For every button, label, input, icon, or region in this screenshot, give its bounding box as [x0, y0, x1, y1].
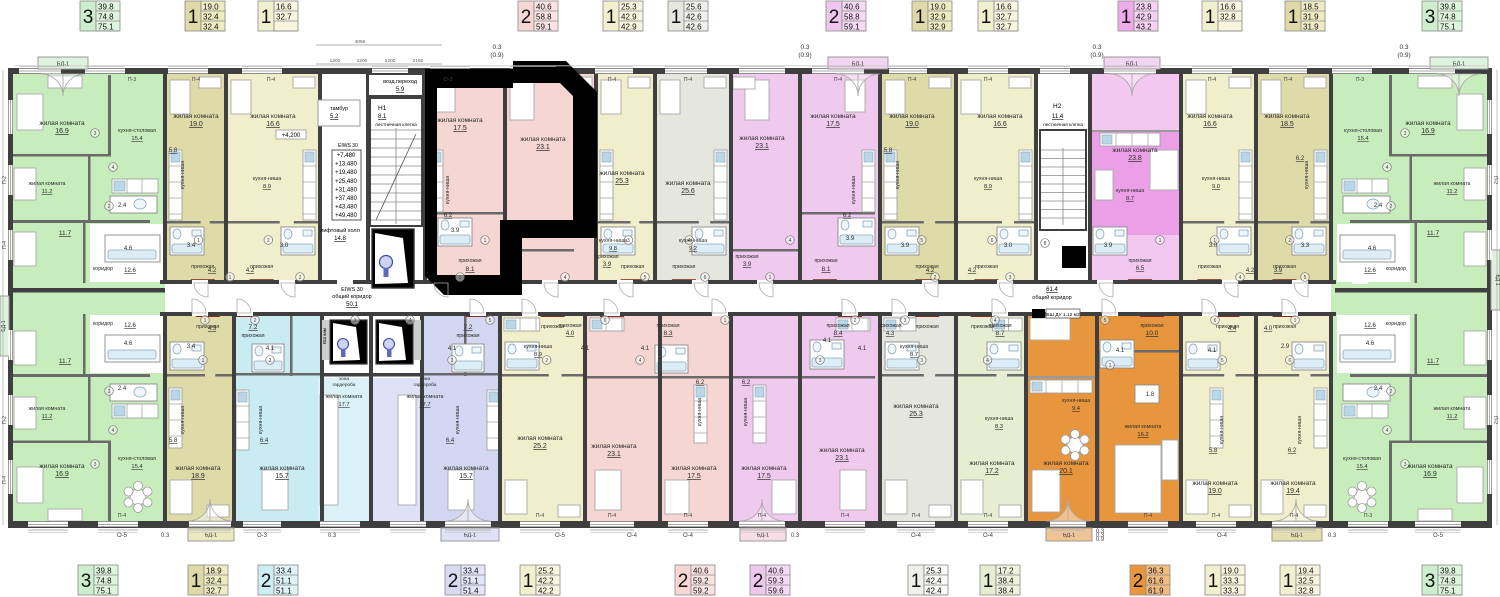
svg-text:жилая комната: жилая комната: [173, 113, 219, 120]
svg-text:19.0: 19.0: [189, 121, 203, 128]
svg-text:2.4: 2.4: [118, 386, 127, 392]
svg-text:15.7: 15.7: [275, 473, 289, 480]
svg-text:прихожая: прихожая: [621, 264, 644, 270]
svg-text:6.2: 6.2: [1288, 448, 1297, 454]
svg-text:коридор: коридор: [93, 321, 113, 327]
svg-text:кухня-ниша: кухня-ниша: [1304, 161, 1310, 189]
svg-text:5: 5: [489, 318, 492, 324]
svg-text:0.3: 0.3: [492, 44, 501, 51]
svg-text:2: 2: [854, 318, 857, 324]
svg-text:О-4: О-4: [911, 533, 922, 539]
svg-text:П-4: П-4: [1144, 513, 1153, 519]
svg-text:П-4: П-4: [908, 77, 917, 83]
svg-text:прихожая: прихожая: [558, 323, 581, 329]
svg-text:1: 1: [261, 7, 272, 28]
svg-text:кухня-ниша: кухня-ниша: [524, 344, 552, 350]
svg-text:61.4: 61.4: [1046, 287, 1058, 293]
svg-text:2: 2: [934, 275, 937, 281]
svg-text:32.7: 32.7: [996, 23, 1012, 32]
svg-text:кухня-ниша: кухня-ниша: [985, 416, 1013, 422]
svg-text:жилая комната: жилая комната: [39, 120, 85, 127]
svg-text:5.9: 5.9: [396, 87, 405, 93]
svg-text:тамбур: тамбур: [330, 106, 348, 112]
svg-text:+49,480: +49,480: [335, 213, 358, 219]
svg-text:6: 6: [704, 275, 707, 281]
svg-text:жилая комната: жилая комната: [977, 113, 1023, 120]
svg-text:38.4: 38.4: [998, 587, 1014, 596]
svg-text:4: 4: [409, 318, 412, 324]
svg-text:15.4: 15.4: [1356, 464, 1368, 470]
svg-text:25.6: 25.6: [686, 3, 702, 12]
svg-text:2: 2: [753, 571, 764, 592]
svg-text:О-4: О-4: [683, 533, 694, 539]
svg-text:3.9: 3.9: [1104, 243, 1113, 249]
svg-text:4.1: 4.1: [858, 346, 867, 352]
svg-text:2: 2: [1133, 571, 1144, 592]
svg-text:прихожая: прихожая: [916, 324, 939, 330]
svg-text:прихожая: прихожая: [1140, 323, 1163, 329]
svg-text:39.8: 39.8: [98, 3, 114, 12]
svg-text:17.5: 17.5: [453, 125, 467, 132]
svg-text:прихожая: прихожая: [456, 333, 479, 339]
svg-text:10.0: 10.0: [1146, 330, 1159, 337]
svg-text:О-3: О-3: [444, 77, 453, 83]
svg-text:3: 3: [1425, 7, 1436, 28]
svg-text:4.1: 4.1: [448, 346, 457, 352]
svg-text:16.6: 16.6: [1203, 121, 1217, 128]
svg-text:1: 1: [1159, 238, 1162, 244]
svg-text:жилая комната: жилая комната: [517, 435, 563, 442]
svg-text:23.1: 23.1: [835, 455, 849, 462]
svg-text:15.4: 15.4: [1357, 136, 1369, 142]
svg-text:42.9: 42.9: [1136, 13, 1152, 22]
svg-text:12.6: 12.6: [124, 323, 136, 329]
svg-text:8.3: 8.3: [663, 330, 672, 337]
svg-text:4: 4: [994, 318, 997, 324]
svg-text:1: 1: [671, 7, 682, 28]
svg-text:жилая комната: жилая комната: [1405, 120, 1451, 127]
svg-text:16.6: 16.6: [993, 121, 1007, 128]
svg-text:5.8: 5.8: [169, 148, 178, 154]
svg-text:О-5: О-5: [1433, 533, 1444, 539]
svg-text:7.2: 7.2: [248, 324, 257, 331]
svg-text:жилая комната: жилая комната: [810, 113, 856, 120]
svg-text:прихожая: прихожая: [1128, 258, 1151, 264]
svg-text:3: 3: [1404, 131, 1407, 137]
svg-text:П-3: П-3: [128, 77, 137, 83]
svg-text:6.2: 6.2: [444, 213, 453, 219]
svg-text:17.7: 17.7: [338, 402, 349, 408]
svg-text:1.8: 1.8: [1146, 392, 1155, 398]
svg-text:4.3: 4.3: [208, 326, 217, 332]
svg-text:4.1: 4.1: [641, 346, 650, 352]
svg-text:гардероба: гардероба: [414, 382, 437, 388]
svg-text:4.4: 4.4: [1228, 326, 1237, 332]
svg-text:кухня-ниша: кухня-ниша: [851, 176, 857, 204]
svg-text:51.4: 51.4: [463, 587, 479, 596]
svg-text:2: 2: [678, 571, 689, 592]
svg-text:32.8: 32.8: [1298, 587, 1314, 596]
svg-text:БД-1: БД-1: [205, 533, 217, 539]
svg-text:31.9: 31.9: [1303, 23, 1319, 32]
svg-text:БД-1: БД-1: [757, 533, 769, 539]
svg-text:25.3: 25.3: [615, 178, 629, 185]
svg-text:3.0: 3.0: [280, 243, 289, 249]
svg-text:4: 4: [564, 275, 567, 281]
svg-text:9.4: 9.4: [1072, 406, 1081, 412]
svg-text:39.8: 39.8: [1440, 567, 1456, 576]
svg-text:0.3: 0.3: [328, 533, 337, 539]
svg-text:гардероба: гардероба: [333, 382, 356, 388]
svg-text:H2: H2: [1053, 103, 1062, 110]
svg-text:40.6: 40.6: [844, 3, 860, 12]
svg-text:33.3: 33.3: [1223, 587, 1239, 596]
svg-text:5: 5: [1221, 358, 1224, 364]
svg-text:32.4: 32.4: [203, 23, 219, 32]
svg-text:О-4: О-4: [983, 533, 994, 539]
svg-text:4: 4: [986, 358, 989, 364]
svg-text:75.1: 75.1: [96, 587, 112, 596]
svg-text:14.8: 14.8: [334, 236, 346, 242]
svg-text:прихожая: прихожая: [1273, 324, 1296, 330]
svg-text:кухня-ниша: кухня-ниша: [1219, 416, 1225, 444]
svg-text:кухня-ниша: кухня-ниша: [743, 398, 749, 426]
svg-text:9.2: 9.2: [689, 246, 697, 252]
svg-text:+7,480: +7,480: [337, 153, 356, 159]
svg-text:кухня-ниша: кухня-ниша: [895, 161, 901, 189]
svg-text:5.8: 5.8: [169, 438, 178, 444]
svg-text:43.2: 43.2: [1136, 23, 1152, 32]
svg-text:жилая комната: жилая комната: [1125, 424, 1162, 430]
svg-text:П-4: П-4: [536, 513, 545, 519]
svg-text:2.9: 2.9: [1281, 344, 1290, 350]
svg-text:1: 1: [1288, 7, 1299, 28]
svg-text:лестничная клетка: лестничная клетка: [375, 123, 417, 128]
svg-text:1: 1: [202, 358, 205, 364]
svg-text:17.5: 17.5: [826, 121, 840, 128]
svg-text:жилая комната: жилая комната: [739, 135, 785, 142]
svg-text:ВШ ДУ 1.12 м2: ВШ ДУ 1.12 м2: [1046, 312, 1080, 318]
svg-text:18.5: 18.5: [1280, 121, 1294, 128]
svg-text:П-3: П-3: [1356, 77, 1365, 83]
svg-text:6: 6: [1214, 318, 1217, 324]
svg-text:50.1: 50.1: [346, 302, 358, 308]
svg-text:17.5: 17.5: [757, 473, 771, 480]
svg-text:3: 3: [1404, 462, 1407, 468]
svg-text:1200: 1200: [385, 58, 396, 64]
svg-text:прихожая: прихожая: [735, 254, 758, 260]
svg-text:23.1: 23.1: [536, 144, 550, 151]
svg-text:32.4: 32.4: [203, 13, 219, 22]
svg-text:жилая комната: жилая комната: [29, 181, 66, 187]
svg-text:36.3: 36.3: [1148, 567, 1164, 576]
svg-text:П-4: П-4: [1290, 513, 1299, 519]
svg-text:3: 3: [94, 462, 97, 468]
svg-text:11.7: 11.7: [59, 230, 72, 237]
svg-text:5: 5: [920, 238, 923, 244]
svg-text:жилая комната: жилая комната: [1434, 181, 1471, 187]
svg-text:11.2: 11.2: [42, 414, 53, 420]
svg-text:БД-1: БД-1: [1291, 533, 1303, 539]
svg-text:4.0: 4.0: [1264, 326, 1273, 332]
svg-text:3.4: 3.4: [187, 344, 196, 350]
svg-text:42.9: 42.9: [621, 13, 637, 22]
svg-text:О-5: О-5: [555, 533, 566, 539]
svg-text:3: 3: [451, 358, 454, 364]
svg-text:зона: зона: [420, 377, 430, 382]
svg-text:О-3: О-3: [257, 533, 268, 539]
svg-text:3.9: 3.9: [603, 262, 612, 268]
svg-text:лифтовый холл: лифтовый холл: [320, 227, 360, 234]
svg-text:жилая комната: жилая комната: [520, 136, 566, 143]
svg-text:32.9: 32.9: [930, 13, 946, 22]
svg-text:23.1: 23.1: [755, 143, 769, 150]
svg-text:(0.9): (0.9): [798, 52, 811, 59]
svg-text:H1: H1: [378, 105, 387, 112]
svg-text:П-4: П-4: [684, 77, 693, 83]
svg-text:прихожая: прихожая: [595, 254, 618, 260]
svg-text:61.9: 61.9: [1148, 587, 1164, 596]
svg-text:0.9: 0.9: [1096, 537, 1105, 543]
svg-text:25.6: 25.6: [681, 188, 695, 195]
svg-text:4: 4: [1386, 428, 1389, 434]
svg-text:33.4: 33.4: [276, 567, 292, 576]
svg-text:12.6: 12.6: [1364, 268, 1376, 274]
svg-text:3: 3: [459, 275, 462, 281]
svg-text:О-4: О-4: [627, 533, 638, 539]
svg-text:4.6: 4.6: [124, 341, 133, 347]
svg-text:жилая комната: жилая комната: [1434, 406, 1471, 412]
svg-text:15.4: 15.4: [131, 136, 143, 142]
svg-text:6.4: 6.4: [446, 438, 455, 444]
svg-text:0.3: 0.3: [1096, 529, 1105, 535]
svg-text:32.8: 32.8: [1220, 13, 1236, 22]
svg-text:4: 4: [639, 358, 642, 364]
svg-text:3.9: 3.9: [451, 228, 460, 234]
svg-text:+31,480: +31,480: [335, 187, 358, 193]
svg-text:кухня-ниша: кухня-ниша: [974, 176, 1002, 182]
svg-text:(0.9): (0.9): [1090, 52, 1103, 59]
svg-text:1: 1: [1208, 571, 1219, 592]
svg-text:прихожая: прихожая: [241, 333, 264, 339]
svg-text:0.3: 0.3: [800, 44, 809, 51]
svg-text:3: 3: [1425, 571, 1436, 592]
svg-text:3.9: 3.9: [846, 236, 855, 242]
svg-text:кухня-столовая: кухня-столовая: [118, 128, 156, 134]
svg-text:19.0: 19.0: [905, 121, 919, 128]
svg-text:5: 5: [644, 275, 647, 281]
svg-text:1: 1: [204, 318, 207, 324]
svg-text:16.9: 16.9: [1423, 471, 1437, 478]
svg-text:16.9: 16.9: [1421, 128, 1435, 135]
svg-text:4.1: 4.1: [1116, 348, 1125, 354]
svg-text:П-3: П-3: [1364, 513, 1373, 519]
svg-text:общий коридор: общий коридор: [332, 293, 371, 300]
svg-text:25.2: 25.2: [538, 567, 554, 576]
svg-text:11.2: 11.2: [1447, 414, 1458, 420]
svg-text:16.6: 16.6: [996, 3, 1012, 12]
svg-text:1: 1: [1109, 363, 1112, 369]
svg-text:6: 6: [604, 318, 607, 324]
svg-text:2.4: 2.4: [118, 203, 127, 209]
svg-text:11.7: 11.7: [59, 358, 72, 365]
svg-text:11.7: 11.7: [1427, 358, 1440, 365]
svg-text:32.7: 32.7: [996, 13, 1012, 22]
svg-text:4: 4: [112, 428, 115, 434]
svg-text:П-4: П-4: [118, 513, 127, 519]
svg-text:прихожая: прихожая: [975, 264, 998, 270]
svg-text:18.9: 18.9: [191, 473, 205, 480]
svg-text:жилая комната: жилая комната: [1264, 113, 1310, 120]
svg-text:прихожая: прихожая: [814, 258, 837, 264]
svg-text:6.2: 6.2: [843, 213, 852, 219]
svg-text:жилая комната: жилая комната: [889, 113, 935, 120]
svg-text:16.6: 16.6: [1220, 3, 1236, 12]
svg-text:1: 1: [769, 275, 772, 281]
svg-text:2: 2: [269, 358, 272, 364]
svg-text:прихожая: прихожая: [988, 323, 1011, 329]
svg-text:2: 2: [1390, 204, 1393, 210]
svg-text:25.3: 25.3: [909, 411, 923, 418]
svg-text:1: 1: [1294, 318, 1297, 324]
svg-text:18.5: 18.5: [1303, 3, 1319, 12]
svg-text:1: 1: [915, 7, 926, 28]
svg-text:жилая комната: жилая комната: [326, 394, 363, 400]
svg-text:40.6: 40.6: [536, 3, 552, 12]
svg-text:8: 8: [1044, 241, 1047, 247]
svg-text:жилая комната: жилая комната: [1192, 480, 1238, 487]
svg-text:8.1: 8.1: [378, 114, 387, 120]
svg-text:4.6: 4.6: [1366, 341, 1375, 347]
svg-text:П-4: П-4: [834, 77, 843, 83]
svg-text:16.9: 16.9: [55, 471, 69, 478]
svg-text:23.1: 23.1: [607, 451, 621, 458]
svg-text:11.2: 11.2: [42, 189, 53, 195]
svg-text:5.2: 5.2: [330, 114, 339, 120]
svg-text:1200: 1200: [330, 58, 341, 64]
svg-text:жилая комната: жилая комната: [665, 180, 711, 187]
svg-text:1: 1: [606, 7, 617, 28]
svg-text:П-2: П-2: [2, 176, 8, 184]
svg-text:кухня-столовая: кухня-столовая: [1343, 456, 1381, 462]
svg-text:прихожая: прихожая: [672, 264, 695, 270]
svg-text:2: 2: [1390, 389, 1393, 395]
svg-text:8.7: 8.7: [995, 330, 1004, 337]
svg-text:6: 6: [1288, 358, 1291, 364]
svg-text:38.4: 38.4: [998, 577, 1014, 586]
svg-text:возд.переход: возд.переход: [383, 79, 418, 85]
svg-text:42.4: 42.4: [926, 587, 942, 596]
svg-text:1: 1: [983, 571, 994, 592]
svg-text:33.3: 33.3: [1223, 577, 1239, 586]
svg-text:42.2: 42.2: [538, 587, 554, 596]
svg-text:БД-1: БД-1: [464, 533, 476, 539]
svg-text:3: 3: [1009, 275, 1012, 281]
svg-text:жилая комната: жилая комната: [407, 394, 444, 400]
svg-text:EIWS 30: EIWS 30: [341, 287, 363, 293]
svg-text:4.2: 4.2: [208, 268, 217, 274]
svg-text:8.1: 8.1: [821, 266, 830, 273]
svg-text:3: 3: [904, 318, 907, 324]
svg-text:кухня-ниша: кухня-ниша: [455, 406, 461, 434]
svg-text:8.9: 8.9: [534, 352, 542, 358]
svg-text:+19,480: +19,480: [335, 170, 358, 176]
svg-text:П-4: П-4: [2, 241, 8, 249]
svg-text:4: 4: [789, 238, 792, 244]
svg-text:лестничная клетка: лестничная клетка: [1043, 122, 1083, 127]
svg-text:17.2: 17.2: [998, 567, 1014, 576]
svg-text:2: 2: [829, 7, 840, 28]
svg-text:8.7: 8.7: [910, 352, 918, 358]
svg-text:2150: 2150: [413, 58, 424, 64]
svg-text:5.8: 5.8: [1209, 448, 1218, 454]
svg-text:(0.9): (0.9): [1397, 52, 1410, 59]
svg-text:П-4: П-4: [1284, 77, 1293, 83]
svg-text:74.8: 74.8: [1440, 13, 1456, 22]
svg-text:2.4: 2.4: [1374, 386, 1383, 392]
svg-text:75.1: 75.1: [1440, 23, 1456, 32]
svg-text:32.9: 32.9: [930, 23, 946, 32]
svg-text:75.1: 75.1: [98, 23, 114, 32]
svg-text:4.1: 4.1: [266, 346, 275, 352]
svg-text:4: 4: [1386, 165, 1389, 171]
svg-text:ВШ кам: ВШ кам: [322, 328, 327, 344]
svg-text:42.6: 42.6: [686, 13, 702, 22]
svg-text:5.8: 5.8: [884, 148, 893, 154]
svg-text:3.9: 3.9: [901, 243, 910, 249]
svg-text:зона: зона: [339, 377, 349, 382]
svg-text:0.3: 0.3: [791, 533, 800, 539]
svg-text:3.0: 3.0: [1209, 243, 1218, 249]
svg-text:(0.9): (0.9): [490, 52, 503, 59]
svg-text:П-4: П-4: [684, 513, 693, 519]
svg-text:6.2: 6.2: [742, 380, 751, 386]
svg-text:20.1: 20.1: [1059, 468, 1073, 475]
svg-text:жилая комната: жилая комната: [1187, 113, 1233, 120]
svg-text:1: 1: [1205, 7, 1216, 28]
svg-text:П-4: П-4: [758, 513, 767, 519]
svg-text:5: 5: [1304, 275, 1307, 281]
svg-text:59.1: 59.1: [536, 23, 552, 32]
svg-text:П-4: П-4: [841, 513, 850, 519]
svg-text:2.4: 2.4: [1374, 203, 1383, 209]
svg-text:3: 3: [94, 131, 97, 137]
svg-text:4: 4: [1239, 275, 1242, 281]
svg-text:3.9: 3.9: [1274, 268, 1283, 274]
svg-text:кухня-ниша: кухня-ниша: [1116, 188, 1144, 194]
svg-text:1: 1: [981, 7, 992, 28]
svg-text:П-4: П-4: [192, 77, 201, 83]
svg-text:2: 2: [448, 571, 459, 592]
svg-text:1: 1: [191, 571, 202, 592]
svg-text:6: 6: [991, 238, 994, 244]
svg-text:П-4: П-4: [984, 513, 993, 519]
svg-text:0.3: 0.3: [1092, 44, 1101, 51]
svg-text:59.2: 59.2: [693, 577, 709, 586]
svg-text:42.9: 42.9: [621, 23, 637, 32]
svg-text:42.4: 42.4: [926, 577, 942, 586]
svg-text:кухня-ниша: кухня-ниша: [253, 176, 281, 182]
svg-text:+4,200: +4,200: [282, 133, 301, 139]
svg-text:жилая комната: жилая комната: [893, 403, 939, 410]
svg-text:19.4: 19.4: [1298, 567, 1314, 576]
svg-text:коридор: коридор: [1386, 321, 1406, 327]
svg-text:19.0: 19.0: [930, 3, 946, 12]
svg-text:П-4: П-4: [608, 513, 617, 519]
svg-text:4.1: 4.1: [1208, 348, 1217, 354]
svg-text:2: 2: [267, 238, 270, 244]
svg-text:59.3: 59.3: [768, 577, 784, 586]
